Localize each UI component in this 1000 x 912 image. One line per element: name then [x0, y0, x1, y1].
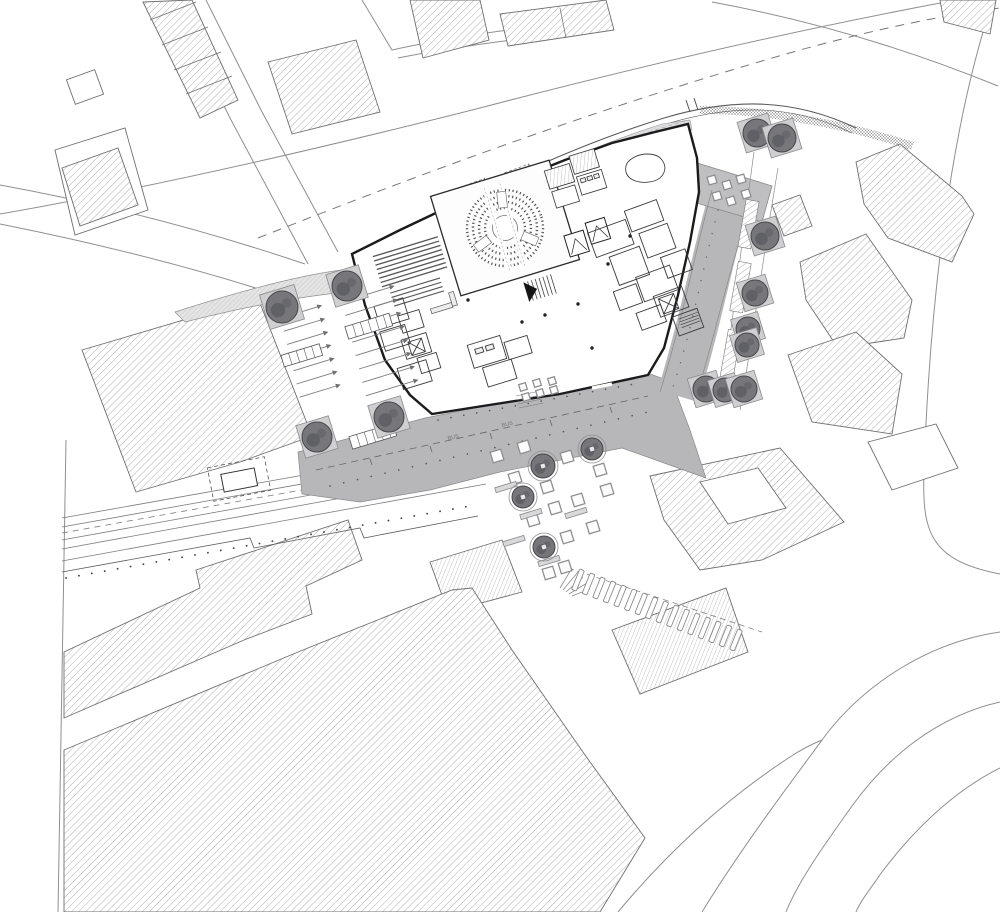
- cafe-table: [536, 389, 545, 398]
- tree-canopy-shade: [782, 130, 790, 138]
- plaza-table: [540, 480, 554, 494]
- crosswalk-bar: [603, 581, 616, 603]
- tree-trunk: [520, 494, 526, 500]
- plaza-table: [593, 463, 607, 477]
- parking-stall-arrow: [317, 303, 323, 309]
- tree-canopy-shade: [744, 382, 752, 390]
- crosswalk-bar: [582, 573, 595, 595]
- tree-trunk: [541, 544, 547, 550]
- terrace-table: [741, 189, 751, 199]
- cafe-table: [550, 386, 559, 395]
- tree-canopy-shade: [747, 338, 754, 345]
- tree-canopy-shade: [282, 298, 292, 308]
- plaza-table: [560, 530, 574, 544]
- tree-canopy-shade: [389, 409, 398, 418]
- parking-stall-line: [300, 386, 338, 398]
- parking-stall-arrow: [326, 343, 332, 349]
- parking-stall-arrow: [320, 316, 326, 322]
- tree-trunk: [589, 446, 595, 452]
- parking-stall-arrow: [332, 369, 338, 375]
- terrace-table: [712, 191, 722, 201]
- parking-stall-line: [287, 333, 325, 345]
- parking-stall-arrow: [323, 329, 329, 335]
- crosswalk-bar: [614, 585, 627, 607]
- terrace-table: [726, 196, 736, 206]
- cafe-table: [522, 393, 531, 402]
- terrace-table: [722, 180, 732, 190]
- site-plan-canvas: BUS BUS: [0, 0, 1000, 912]
- crosshatch-curb-strip: [700, 106, 914, 150]
- cafe-table: [519, 383, 528, 392]
- plaza-table: [571, 493, 585, 507]
- crosswalk-bar: [624, 589, 637, 611]
- parking-stall-arrow: [335, 382, 341, 388]
- cafe-table: [533, 379, 542, 388]
- bench: [565, 507, 588, 518]
- terrace-table: [736, 174, 746, 184]
- crosswalk-bar: [593, 577, 606, 599]
- parking-stall-arrow: [329, 356, 335, 362]
- crosswalk-bar: [635, 593, 648, 615]
- plaza-table: [542, 566, 556, 580]
- terrace-table: [707, 175, 717, 185]
- plaza-table: [558, 560, 572, 574]
- tree-canopy-shade: [765, 228, 773, 236]
- main-building: [352, 124, 712, 414]
- crosswalk-bar: [572, 569, 585, 591]
- cafe-table: [548, 377, 557, 386]
- plaza-table: [517, 440, 531, 454]
- bench: [503, 535, 526, 546]
- plaza-table: [548, 501, 562, 515]
- tree-trunk: [540, 463, 546, 469]
- plaza-table: [600, 483, 614, 497]
- site-plan-drawing: BUS BUS: [0, 0, 1000, 912]
- tree-canopy-shade: [755, 286, 763, 294]
- plaza-table: [490, 449, 504, 463]
- tree-canopy-shade: [317, 429, 326, 438]
- tree-canopy-shade: [347, 278, 356, 287]
- parking-stall-line: [297, 372, 335, 384]
- plaza-table: [560, 450, 574, 464]
- plaza-table: [586, 520, 600, 534]
